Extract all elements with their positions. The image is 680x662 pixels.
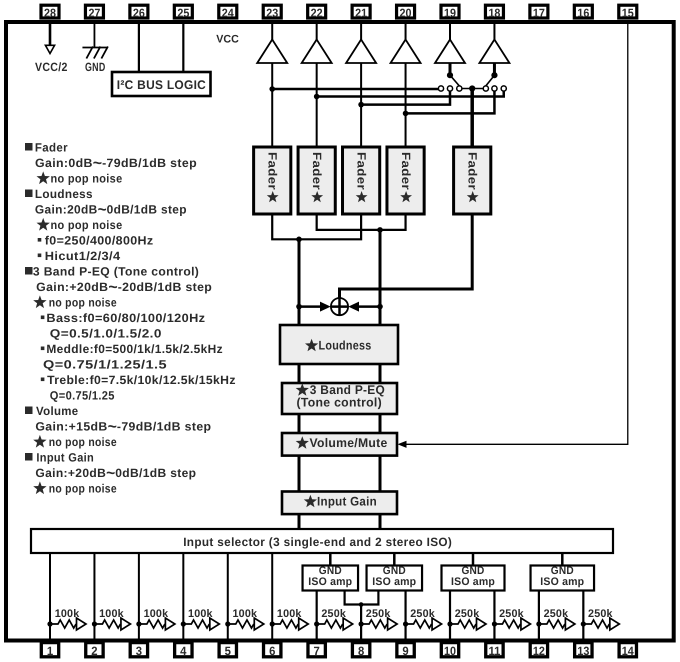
svg-text:6: 6 [269,644,276,658]
svg-text:Gain:+20dB~0dB/1dB step: Gain:+20dB~0dB/1dB step [35,465,196,482]
svg-text:8: 8 [358,644,365,658]
svg-text:Volume: Volume [36,404,79,418]
svg-text:100k: 100k [277,608,302,620]
svg-text:Volume/Mute: Volume/Mute [310,436,388,450]
svg-text:Treble:f0=7.5k/10k/12.5k/15kHz: Treble:f0=7.5k/10k/12.5k/15kHz [47,373,236,387]
svg-text:26: 26 [133,6,145,20]
svg-text:Gain:0dB~-79dB/1dB step: Gain:0dB~-79dB/1dB step [35,155,197,172]
svg-text:ISO amp: ISO amp [308,576,352,588]
svg-text:23: 23 [266,6,278,20]
svg-text:no pop noise: no pop noise [51,171,123,185]
svg-text:1: 1 [47,644,54,658]
svg-text:VCC/2: VCC/2 [35,60,68,74]
svg-text:250k: 250k [544,608,569,620]
svg-text:Q=0.75/1.25: Q=0.75/1.25 [50,388,115,402]
svg-text:Fader: Fader [466,152,480,190]
svg-text:100k: 100k [99,608,124,620]
svg-text:21: 21 [355,6,367,20]
svg-text:13: 13 [577,644,589,658]
svg-text:3 Band P-EQ (Tone control): 3 Band P-EQ (Tone control) [33,264,199,278]
svg-text:250k: 250k [455,608,480,620]
svg-text:Input selector (3 single-end a: Input selector (3 single-end and 2 stere… [183,535,452,549]
svg-text:Gain:+20dB~-20dB/1dB step: Gain:+20dB~-20dB/1dB step [36,279,212,296]
svg-text:no pop noise: no pop noise [49,435,117,449]
svg-text:27: 27 [88,6,100,20]
svg-text:Gain:20dB~0dB/1dB step: Gain:20dB~0dB/1dB step [35,202,187,219]
svg-text:5: 5 [225,644,232,658]
svg-text:Fader: Fader [35,140,68,154]
svg-text:Fader: Fader [266,152,280,190]
svg-text:Input Gain: Input Gain [317,495,377,509]
svg-text:22: 22 [311,6,323,20]
svg-text:f0=250/400/800Hz: f0=250/400/800Hz [45,233,154,247]
svg-text:no pop noise: no pop noise [49,295,117,309]
svg-text:12: 12 [533,644,545,658]
svg-text:Gain:+15dB~-79dB/1dB step: Gain:+15dB~-79dB/1dB step [35,419,211,436]
svg-text:Loudness: Loudness [319,339,372,353]
svg-text:100k: 100k [144,608,169,620]
svg-text:Fader: Fader [310,152,324,190]
svg-text:I²C BUS LOGIC: I²C BUS LOGIC [117,78,206,92]
svg-text:250k: 250k [588,608,613,620]
svg-text:250k: 250k [321,608,346,620]
svg-text:14: 14 [622,644,634,658]
svg-text:11: 11 [488,644,500,658]
svg-text:Bass:f0=60/80/100/120Hz: Bass:f0=60/80/100/120Hz [46,311,205,325]
svg-text:28: 28 [44,6,56,20]
svg-text:ISO amp: ISO amp [451,576,495,588]
svg-text:250k: 250k [499,608,524,620]
svg-text:24: 24 [222,6,234,20]
svg-text:7: 7 [314,644,321,658]
svg-text:100k: 100k [232,608,257,620]
svg-text:2: 2 [91,644,98,658]
svg-text:250k: 250k [410,608,435,620]
svg-text:18: 18 [488,6,500,20]
svg-text:VCC: VCC [216,33,239,45]
svg-text:Q=0.75/1/1.25/1.5: Q=0.75/1/1.25/1.5 [43,357,167,371]
svg-text:10: 10 [444,644,456,658]
svg-text:16: 16 [577,6,589,20]
svg-text:Hicut1/2/3/4: Hicut1/2/3/4 [45,249,121,263]
svg-text:20: 20 [400,6,412,20]
svg-text:17: 17 [533,6,545,20]
svg-text:Fader: Fader [354,152,368,190]
svg-text:3: 3 [136,644,143,658]
svg-text:19: 19 [444,6,456,20]
svg-text:no pop noise: no pop noise [49,481,117,495]
svg-text:4: 4 [180,644,187,658]
svg-text:no pop noise: no pop noise [51,218,123,232]
svg-text:ISO amp: ISO amp [372,576,416,588]
svg-text:(Tone control): (Tone control) [297,396,383,410]
svg-text:250k: 250k [366,608,391,620]
svg-text:Meddle:f0=500/1k/1.5k/2.5kHz: Meddle:f0=500/1k/1.5k/2.5kHz [46,342,223,356]
svg-text:9: 9 [402,644,409,658]
svg-text:25: 25 [177,6,189,20]
svg-text:100k: 100k [188,608,213,620]
svg-text:100k: 100k [55,608,80,620]
svg-text:Input Gain: Input Gain [36,450,94,464]
svg-text:ISO amp: ISO amp [540,576,584,588]
svg-text:Loudness: Loudness [35,187,93,201]
svg-text:Q=0.5/1.0/1.5/2.0: Q=0.5/1.0/1.5/2.0 [50,326,162,340]
svg-text:15: 15 [622,6,634,20]
svg-text:Fader: Fader [399,152,413,190]
svg-text:GND: GND [85,60,106,74]
